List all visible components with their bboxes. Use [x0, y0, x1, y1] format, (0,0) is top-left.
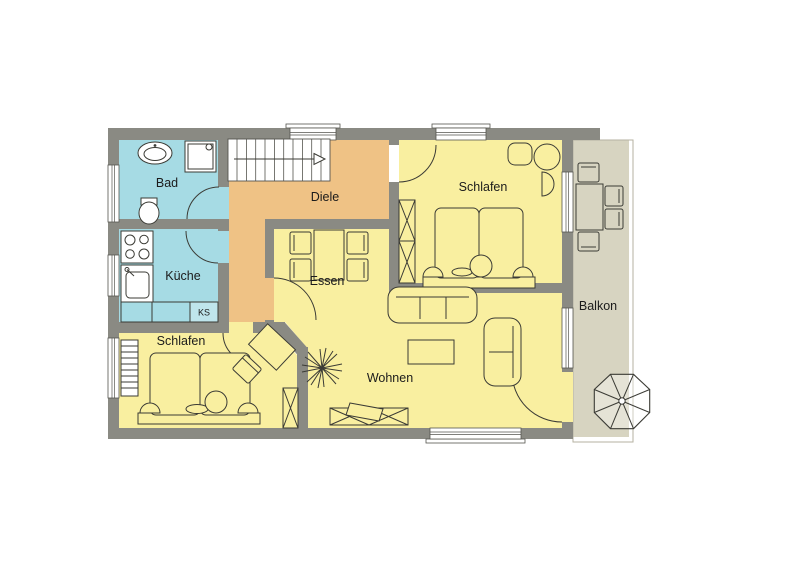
wall-right [562, 368, 573, 372]
window-icon [108, 255, 119, 296]
side-table-icon [534, 144, 560, 170]
room-label-wohnen: Wohnen [367, 371, 413, 385]
wall-top [108, 128, 600, 140]
wall-diele-essen [265, 219, 399, 229]
wall-right [562, 232, 573, 308]
stairs-icon [228, 139, 330, 181]
window-icon [108, 338, 119, 398]
floor-plan-drawing: KS [0, 0, 800, 563]
room-diele-floor [330, 139, 389, 219]
room-label-schlafen-bottom: Schlafen [157, 334, 206, 348]
chair-icon [290, 232, 311, 254]
window-icon [290, 128, 336, 140]
sink-icon [121, 265, 153, 302]
chair-icon [347, 259, 368, 281]
dining-table-icon [314, 230, 344, 280]
room-label-balkon: Balkon [579, 299, 617, 313]
radiator-icon [121, 340, 138, 396]
parasol-icon [594, 374, 649, 428]
ks-label: KS [198, 308, 210, 318]
coffee-table-icon [408, 340, 454, 364]
balcony-chair-icon [605, 186, 623, 206]
wall-schlafen-bottom-east [297, 347, 308, 428]
room-diele-corridor-floor [228, 219, 265, 333]
room-label-schlafen-top: Schlafen [459, 180, 508, 194]
wall-corridor-west [218, 219, 229, 231]
balcony-chair-icon [605, 209, 623, 229]
wall-bad-right [218, 139, 229, 187]
shower-icon [185, 141, 216, 172]
wall-schlafen-bottom-north [108, 322, 223, 333]
stove-icon [121, 231, 153, 263]
threshold [218, 187, 229, 219]
wardrobe-icon [283, 388, 298, 428]
window-icon [430, 428, 521, 439]
sofa-icon [388, 287, 477, 323]
fridge-icon: KS [190, 302, 218, 322]
wall-schlafen-top-west [389, 139, 399, 145]
wall-corridor-east [265, 229, 274, 278]
window-icon [562, 308, 573, 368]
wall-schlafen-top-west [389, 182, 399, 293]
room-label-kueche: Küche [165, 269, 200, 283]
wall-right [562, 140, 573, 172]
corner-chair-icon [508, 143, 532, 165]
wall-bad-kueche [108, 219, 229, 229]
chair-icon [290, 259, 311, 281]
double-bed-icon [423, 208, 535, 288]
window-icon [562, 172, 573, 232]
window-icon [436, 128, 486, 140]
room-label-bad: Bad [156, 176, 178, 190]
threshold [218, 231, 229, 263]
threshold [562, 372, 573, 422]
room-label-essen: Essen [310, 274, 345, 288]
window-sill [286, 124, 340, 128]
threshold [265, 278, 274, 320]
toilet-icon [139, 198, 159, 224]
window-sill [432, 124, 490, 128]
floor-plan: KS [0, 0, 800, 563]
window-icon [108, 165, 119, 222]
washbasin-icon [138, 142, 172, 164]
room-label-diele: Diele [311, 190, 340, 204]
balcony-chair-icon [578, 232, 599, 251]
balcony-table-icon [576, 184, 603, 230]
wardrobe-icon [399, 200, 415, 283]
chair-icon [347, 232, 368, 254]
wall-right [562, 422, 573, 428]
balcony-chair-icon [578, 163, 599, 182]
armchair-icon [484, 318, 521, 386]
window-sill [426, 439, 525, 443]
